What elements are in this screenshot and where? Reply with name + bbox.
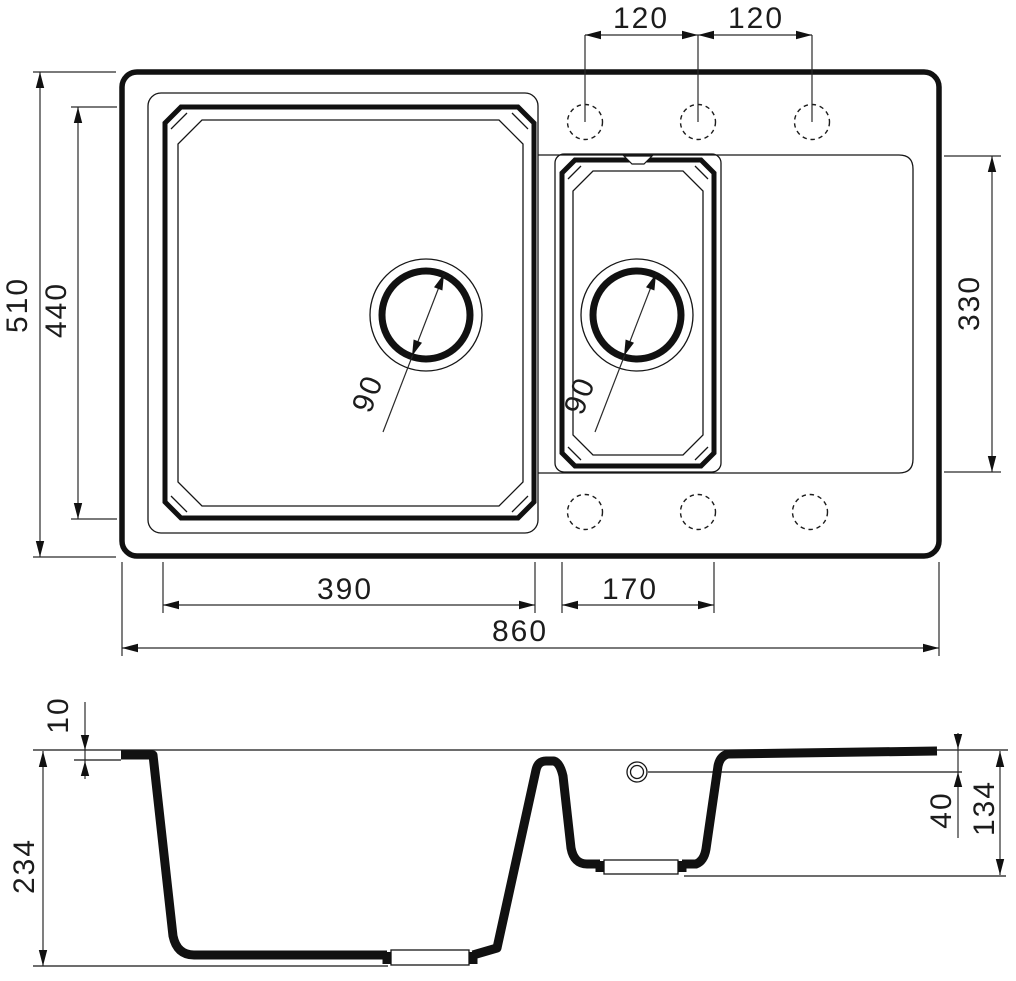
arrowhead-icon [682, 31, 698, 39]
arrowhead-icon [74, 503, 82, 519]
dim-10-label: 10 [42, 696, 75, 733]
arrowhead-icon [81, 735, 89, 750]
dim-faucet-spacing-left: 120 [613, 2, 669, 35]
arrowhead-icon [81, 761, 89, 776]
arrowhead-icon [163, 601, 179, 609]
dim-rim-height: 10 [42, 696, 89, 779]
arrowhead-icon [36, 72, 44, 88]
dim-secondary-bowl-width: 170 [562, 562, 714, 613]
dim-134-label: 134 [968, 780, 1001, 836]
section-drainboard-profile [682, 751, 937, 864]
dim-main-bowl-length: 440 [40, 107, 117, 519]
arrowhead-icon [122, 644, 138, 652]
arrowhead-icon [698, 601, 714, 609]
arrowhead-icon [954, 734, 962, 749]
main-drain-fitting [391, 950, 469, 965]
section-divider-profile [473, 761, 600, 955]
arrowhead-icon [923, 644, 939, 652]
sink-technical-drawing: 90 90 120 120 510 [0, 0, 1016, 981]
arrowhead-icon [988, 456, 996, 472]
dim-170-label: 170 [602, 573, 658, 606]
sink-body-outline [122, 72, 939, 556]
section-main-bowl-profile [121, 755, 387, 955]
dim-secondary-bowl-depth: 134 [968, 751, 1004, 875]
dim-390-label: 390 [317, 573, 373, 606]
arrowhead-icon [36, 541, 44, 557]
secondary-drain-fitting [604, 860, 678, 874]
dim-330-label: 330 [953, 275, 986, 331]
overflow-hole-inner-icon [631, 766, 644, 779]
dim-overall-depth: 234 [8, 751, 47, 966]
arrowhead-icon [519, 601, 535, 609]
arrowhead-icon [74, 107, 82, 123]
arrowhead-icon [698, 31, 714, 39]
dim-40-label: 40 [925, 791, 958, 828]
arrowhead-icon [796, 31, 812, 39]
arrowhead-icon [996, 859, 1004, 875]
dim-510-label: 510 [1, 277, 34, 333]
arrowhead-icon [39, 751, 47, 767]
dim-drainboard-length: 330 [944, 156, 1001, 472]
arrowhead-icon [988, 156, 996, 172]
dim-440-label: 440 [40, 282, 73, 338]
section-view: 10 234 40 134 [8, 696, 1008, 966]
drawing-canvas: 90 90 120 120 510 [0, 0, 1016, 981]
arrowhead-icon [562, 601, 578, 609]
dim-overall-width: 860 [122, 562, 939, 656]
arrowhead-icon [996, 751, 1004, 767]
arrowhead-icon [954, 772, 962, 787]
dim-main-bowl-width: 390 [163, 562, 535, 613]
dim-234-label: 234 [8, 838, 41, 894]
top-view: 90 90 120 120 510 [1, 2, 1001, 656]
dim-860-label: 860 [492, 615, 548, 648]
dim-lines [71, 107, 117, 519]
dim-faucet-spacing-right: 120 [728, 2, 784, 35]
arrowhead-icon [39, 950, 47, 966]
arrowhead-icon [585, 31, 601, 39]
